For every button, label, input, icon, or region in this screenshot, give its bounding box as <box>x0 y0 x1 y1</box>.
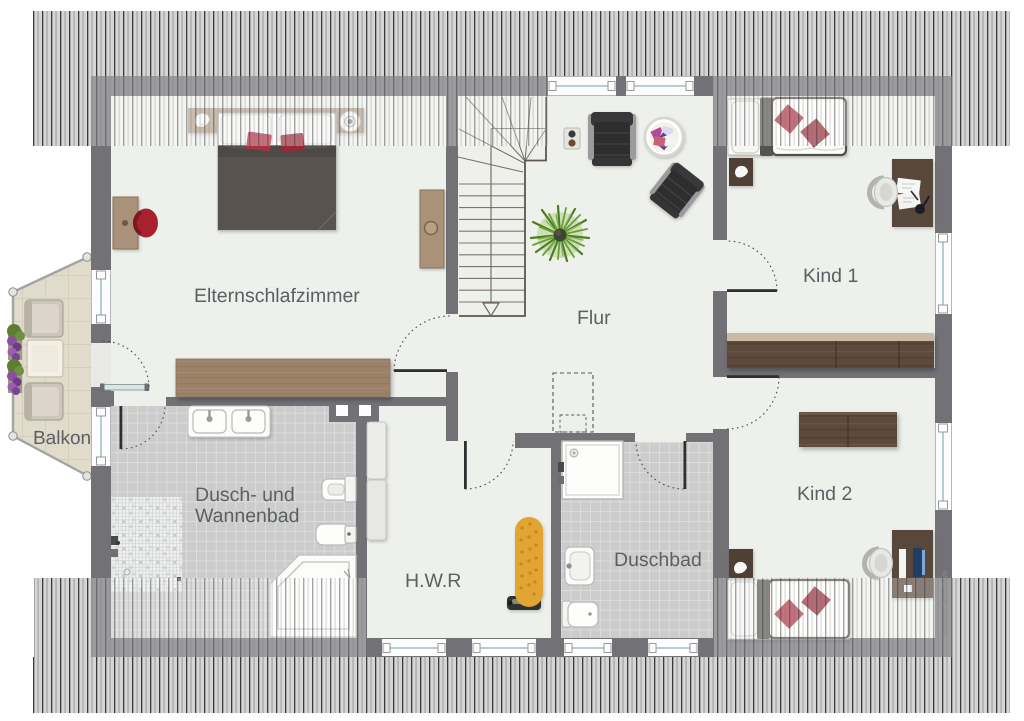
svg-text:Balkon: Balkon <box>33 428 91 449</box>
svg-text:Elternschlafzimmer: Elternschlafzimmer <box>194 285 360 307</box>
svg-text:Kind 1: Kind 1 <box>803 265 858 287</box>
svg-text:Flur: Flur <box>577 307 611 329</box>
svg-text:Wannenbad: Wannenbad <box>195 505 299 527</box>
svg-text:Duschbad: Duschbad <box>614 549 702 571</box>
svg-text:Illustration DiemaGrafik: Illustration DiemaGrafik <box>942 569 949 637</box>
svg-text:Kind 2: Kind 2 <box>797 483 852 505</box>
svg-text:H.W.R: H.W.R <box>405 570 461 592</box>
svg-text:Dusch- und: Dusch- und <box>195 484 295 506</box>
